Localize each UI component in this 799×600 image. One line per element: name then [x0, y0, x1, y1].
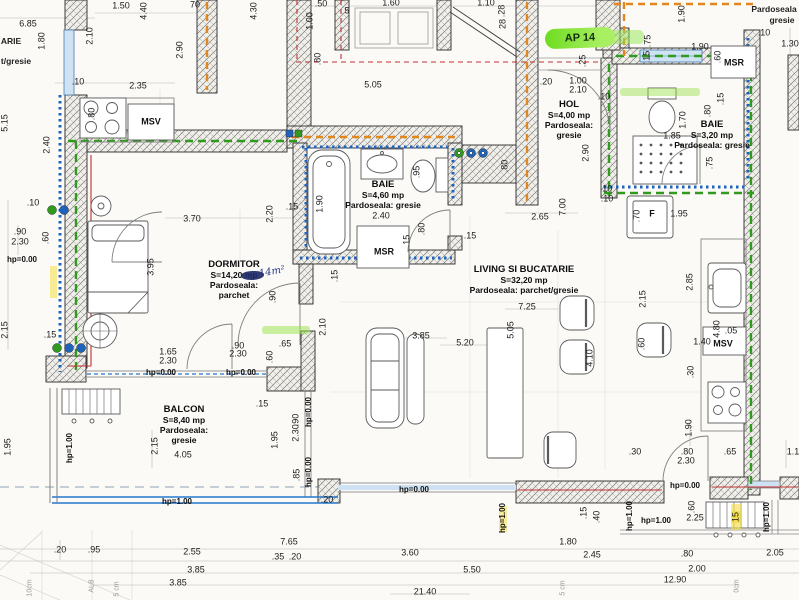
bathtub-icon: [308, 150, 350, 254]
stairs-ramp: [450, 7, 520, 57]
room-label-balcon: BALCON S=8,40 mp Pardoseala: gresie: [160, 404, 208, 445]
room-floor: Pardoseala:: [545, 120, 593, 130]
room-area: S=4,60 mp: [345, 190, 421, 200]
room-floor: Pardoseala: gresie: [674, 140, 750, 150]
side-table-icon: [83, 314, 117, 348]
washing-machine-box: [357, 226, 409, 268]
floorplan-drawing: [0, 0, 799, 600]
room-label-baie-1: BAIE S=4,60 mp Pardoseala: gresie: [345, 179, 421, 210]
room-name: HOL: [545, 99, 593, 110]
kitchen-sink-icon: [708, 263, 746, 313]
room-area: S=8,40 mp: [160, 415, 208, 425]
radiator-icon: [62, 389, 120, 423]
room-name: LIVING SI BUCATARIE: [470, 264, 579, 275]
room-floor: parchet: [208, 290, 260, 300]
chair-icon: [560, 340, 594, 374]
apartment-badge: AP 14: [545, 27, 616, 49]
bed-icon: [88, 221, 148, 313]
room-name: DORMITOR: [208, 259, 260, 270]
room-floor: Pardoseala: parchet/gresie: [470, 285, 579, 295]
room-floor: Pardoseala:: [160, 425, 208, 435]
washing-machine-box: [711, 46, 756, 78]
room-floor: Pardoseala: gresie: [345, 200, 421, 210]
room-name: BAIE: [345, 179, 421, 190]
dining-table-icon: [487, 328, 523, 458]
room-floor: gresie: [160, 435, 208, 445]
dishwasher-box: [703, 327, 746, 355]
room-area: S=3,20 mp: [674, 130, 750, 140]
chair-icon: [544, 432, 576, 468]
room-area: S=4,00 mp: [545, 110, 593, 120]
room-label-living: LIVING SI BUCATARIE S=32,20 mp Pardoseal…: [470, 264, 579, 295]
room-name: BALCON: [160, 404, 208, 415]
room-label-baie-2: BAIE S=3,20 mp Pardoseala: gresie: [674, 119, 750, 150]
room-label-hol: HOL S=4,00 mp Pardoseala: gresie: [545, 99, 593, 140]
elevator: [355, 8, 433, 48]
room-area: S=32,20 mp: [470, 275, 579, 285]
room-floor: gresie: [545, 130, 593, 140]
chair-icon: [560, 296, 594, 330]
nightstand-icon: [91, 196, 111, 216]
fridge-icon: [627, 196, 673, 238]
room-floor: Pardoseala:: [208, 280, 260, 290]
floor-plan: AP 14 HOL S=4,00 mp Pardoseala: gresie B…: [0, 0, 799, 600]
stove-icon: [708, 382, 746, 423]
sofa-icon: [366, 328, 424, 428]
sink-icon: [361, 149, 403, 179]
apartment-badge-label: AP 14: [565, 31, 596, 44]
chair-icon: [637, 323, 671, 357]
room-name: BAIE: [674, 119, 750, 130]
